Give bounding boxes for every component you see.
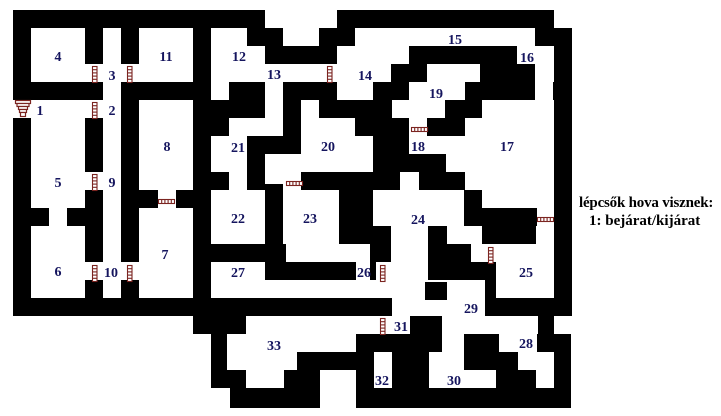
- svg-text:32: 32: [375, 374, 389, 389]
- svg-text:24: 24: [411, 213, 425, 228]
- svg-text:6: 6: [55, 265, 62, 280]
- svg-text:33: 33: [267, 339, 281, 354]
- svg-text:14: 14: [358, 69, 372, 84]
- svg-text:31: 31: [394, 320, 408, 335]
- svg-text:26: 26: [357, 266, 371, 281]
- svg-text:8: 8: [164, 140, 171, 155]
- svg-text:15: 15: [448, 33, 462, 48]
- svg-text:18: 18: [411, 140, 425, 155]
- svg-text:16: 16: [520, 51, 534, 66]
- svg-text:12: 12: [232, 50, 246, 65]
- svg-text:4: 4: [55, 50, 62, 65]
- svg-text:23: 23: [303, 212, 317, 227]
- svg-text:29: 29: [464, 302, 478, 317]
- svg-text:11: 11: [159, 50, 172, 65]
- svg-text:28: 28: [519, 337, 533, 352]
- svg-text:13: 13: [267, 68, 281, 83]
- svg-text:lépcsők hova visznek:: lépcsők hova visznek:: [579, 195, 713, 211]
- svg-text:19: 19: [429, 87, 443, 102]
- svg-text:25: 25: [519, 266, 533, 281]
- svg-text:27: 27: [231, 266, 245, 281]
- svg-text:30: 30: [447, 374, 461, 389]
- svg-text:17: 17: [500, 140, 514, 155]
- svg-text:3: 3: [109, 69, 116, 84]
- svg-text:22: 22: [231, 212, 245, 227]
- svg-text:21: 21: [231, 141, 245, 156]
- svg-text:10: 10: [104, 266, 118, 281]
- svg-text:20: 20: [321, 140, 335, 155]
- svg-text:7: 7: [162, 248, 169, 263]
- svg-text:1: bejárat/kijárat: 1: bejárat/kijárat: [589, 213, 700, 229]
- svg-text:5: 5: [55, 176, 62, 191]
- svg-text:1: 1: [37, 104, 44, 119]
- svg-text:9: 9: [109, 176, 116, 191]
- svg-text:2: 2: [109, 104, 116, 119]
